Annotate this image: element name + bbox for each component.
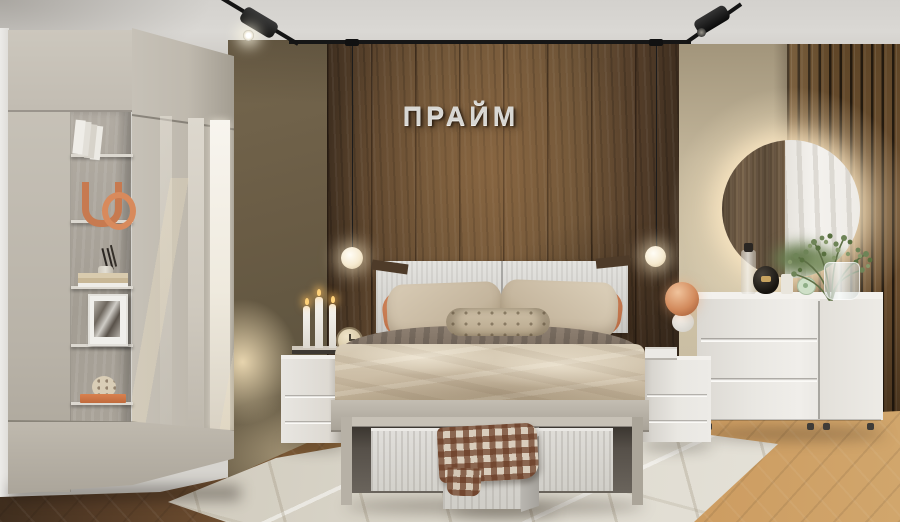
nightstand-right-drawer-gap2 (647, 420, 707, 423)
storage-bin-right (537, 428, 613, 491)
pendant-mount-left (345, 39, 359, 46)
dresser-foot (867, 423, 874, 430)
wardrobe-base-drawers (8, 420, 234, 494)
dresser-drawer-gap-2 (701, 378, 817, 382)
dresser-foot (807, 423, 814, 430)
shelf-board (71, 154, 133, 157)
pendant-cord-left (352, 46, 353, 247)
candle-1 (303, 306, 310, 348)
wall-sign: ПРАЙМ (376, 101, 546, 132)
spotlight-right-lens (697, 28, 706, 37)
candle-3 (329, 304, 336, 348)
spotlight-left-lens (243, 30, 254, 41)
wardrobe-mirror-doors (132, 28, 234, 430)
plaid-blanket-tail (447, 467, 482, 496)
nightstand-left-drawer-gap2 (285, 421, 337, 424)
dresser-door (820, 299, 883, 420)
bench-left-panel (341, 417, 352, 505)
storage-bin-left (371, 428, 447, 491)
duvet (335, 344, 645, 406)
bolster-pillow (446, 308, 550, 336)
sunlight-streaks (132, 178, 234, 430)
table-lamp-orange-globe (665, 282, 699, 316)
wall-sign-text: ПРАЙМ (403, 101, 519, 131)
dresser-bottom-gap (699, 419, 881, 421)
wardrobe-unit (6, 26, 234, 492)
bench-right-panel (632, 417, 643, 505)
perfume-gold-label (761, 276, 771, 282)
wardrobe-top-cabinet (8, 30, 132, 112)
dresser-foot (823, 423, 830, 430)
pendant-globe-right (645, 246, 666, 267)
nightstand-right-drawer-gap (647, 394, 707, 397)
framed-print (88, 294, 128, 346)
dresser-drawer-gap-1 (701, 338, 817, 342)
candle-2 (315, 297, 323, 348)
candle-flame (331, 296, 335, 303)
perfume-cap (744, 243, 753, 252)
candle-flame (317, 289, 321, 296)
orange-book (80, 394, 126, 403)
candle-flame (305, 298, 309, 305)
pendant-globe-left (341, 247, 363, 269)
bedroom-photo: ПРАЙМ (0, 0, 900, 522)
dresser (697, 292, 883, 434)
pendant-cord-right (656, 46, 657, 246)
shelf-board (71, 286, 133, 289)
nightstand-book (645, 347, 677, 360)
book-stack (78, 273, 128, 278)
glass-vase (824, 262, 860, 300)
pendant-mount-right (649, 39, 663, 46)
nightstand-left-drawer-gap (285, 395, 337, 398)
orange-tube-sculpture-knot (102, 192, 136, 230)
framed-print-art (94, 301, 120, 337)
